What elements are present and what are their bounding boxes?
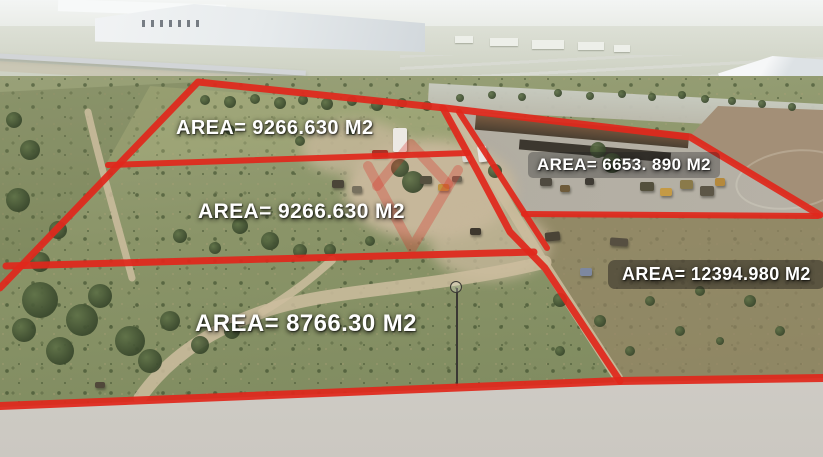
area-label-right-yard: AREA= 6653. 890 M2 bbox=[528, 152, 720, 178]
watermark-logo bbox=[0, 0, 823, 457]
area-label-bottom-left: AREA= 8766.30 M2 bbox=[195, 310, 417, 338]
area-label-right-field: AREA= 12394.980 M2 bbox=[608, 260, 823, 289]
aerial-photo: AREA= 9266.630 M2 AREA= 9266.630 M2 AREA… bbox=[0, 0, 823, 457]
watermark-inner-peak bbox=[377, 144, 448, 186]
area-label-top-left: AREA= 9266.630 M2 bbox=[176, 117, 373, 140]
area-label-middle-left: AREA= 9266.630 M2 bbox=[198, 200, 405, 224]
